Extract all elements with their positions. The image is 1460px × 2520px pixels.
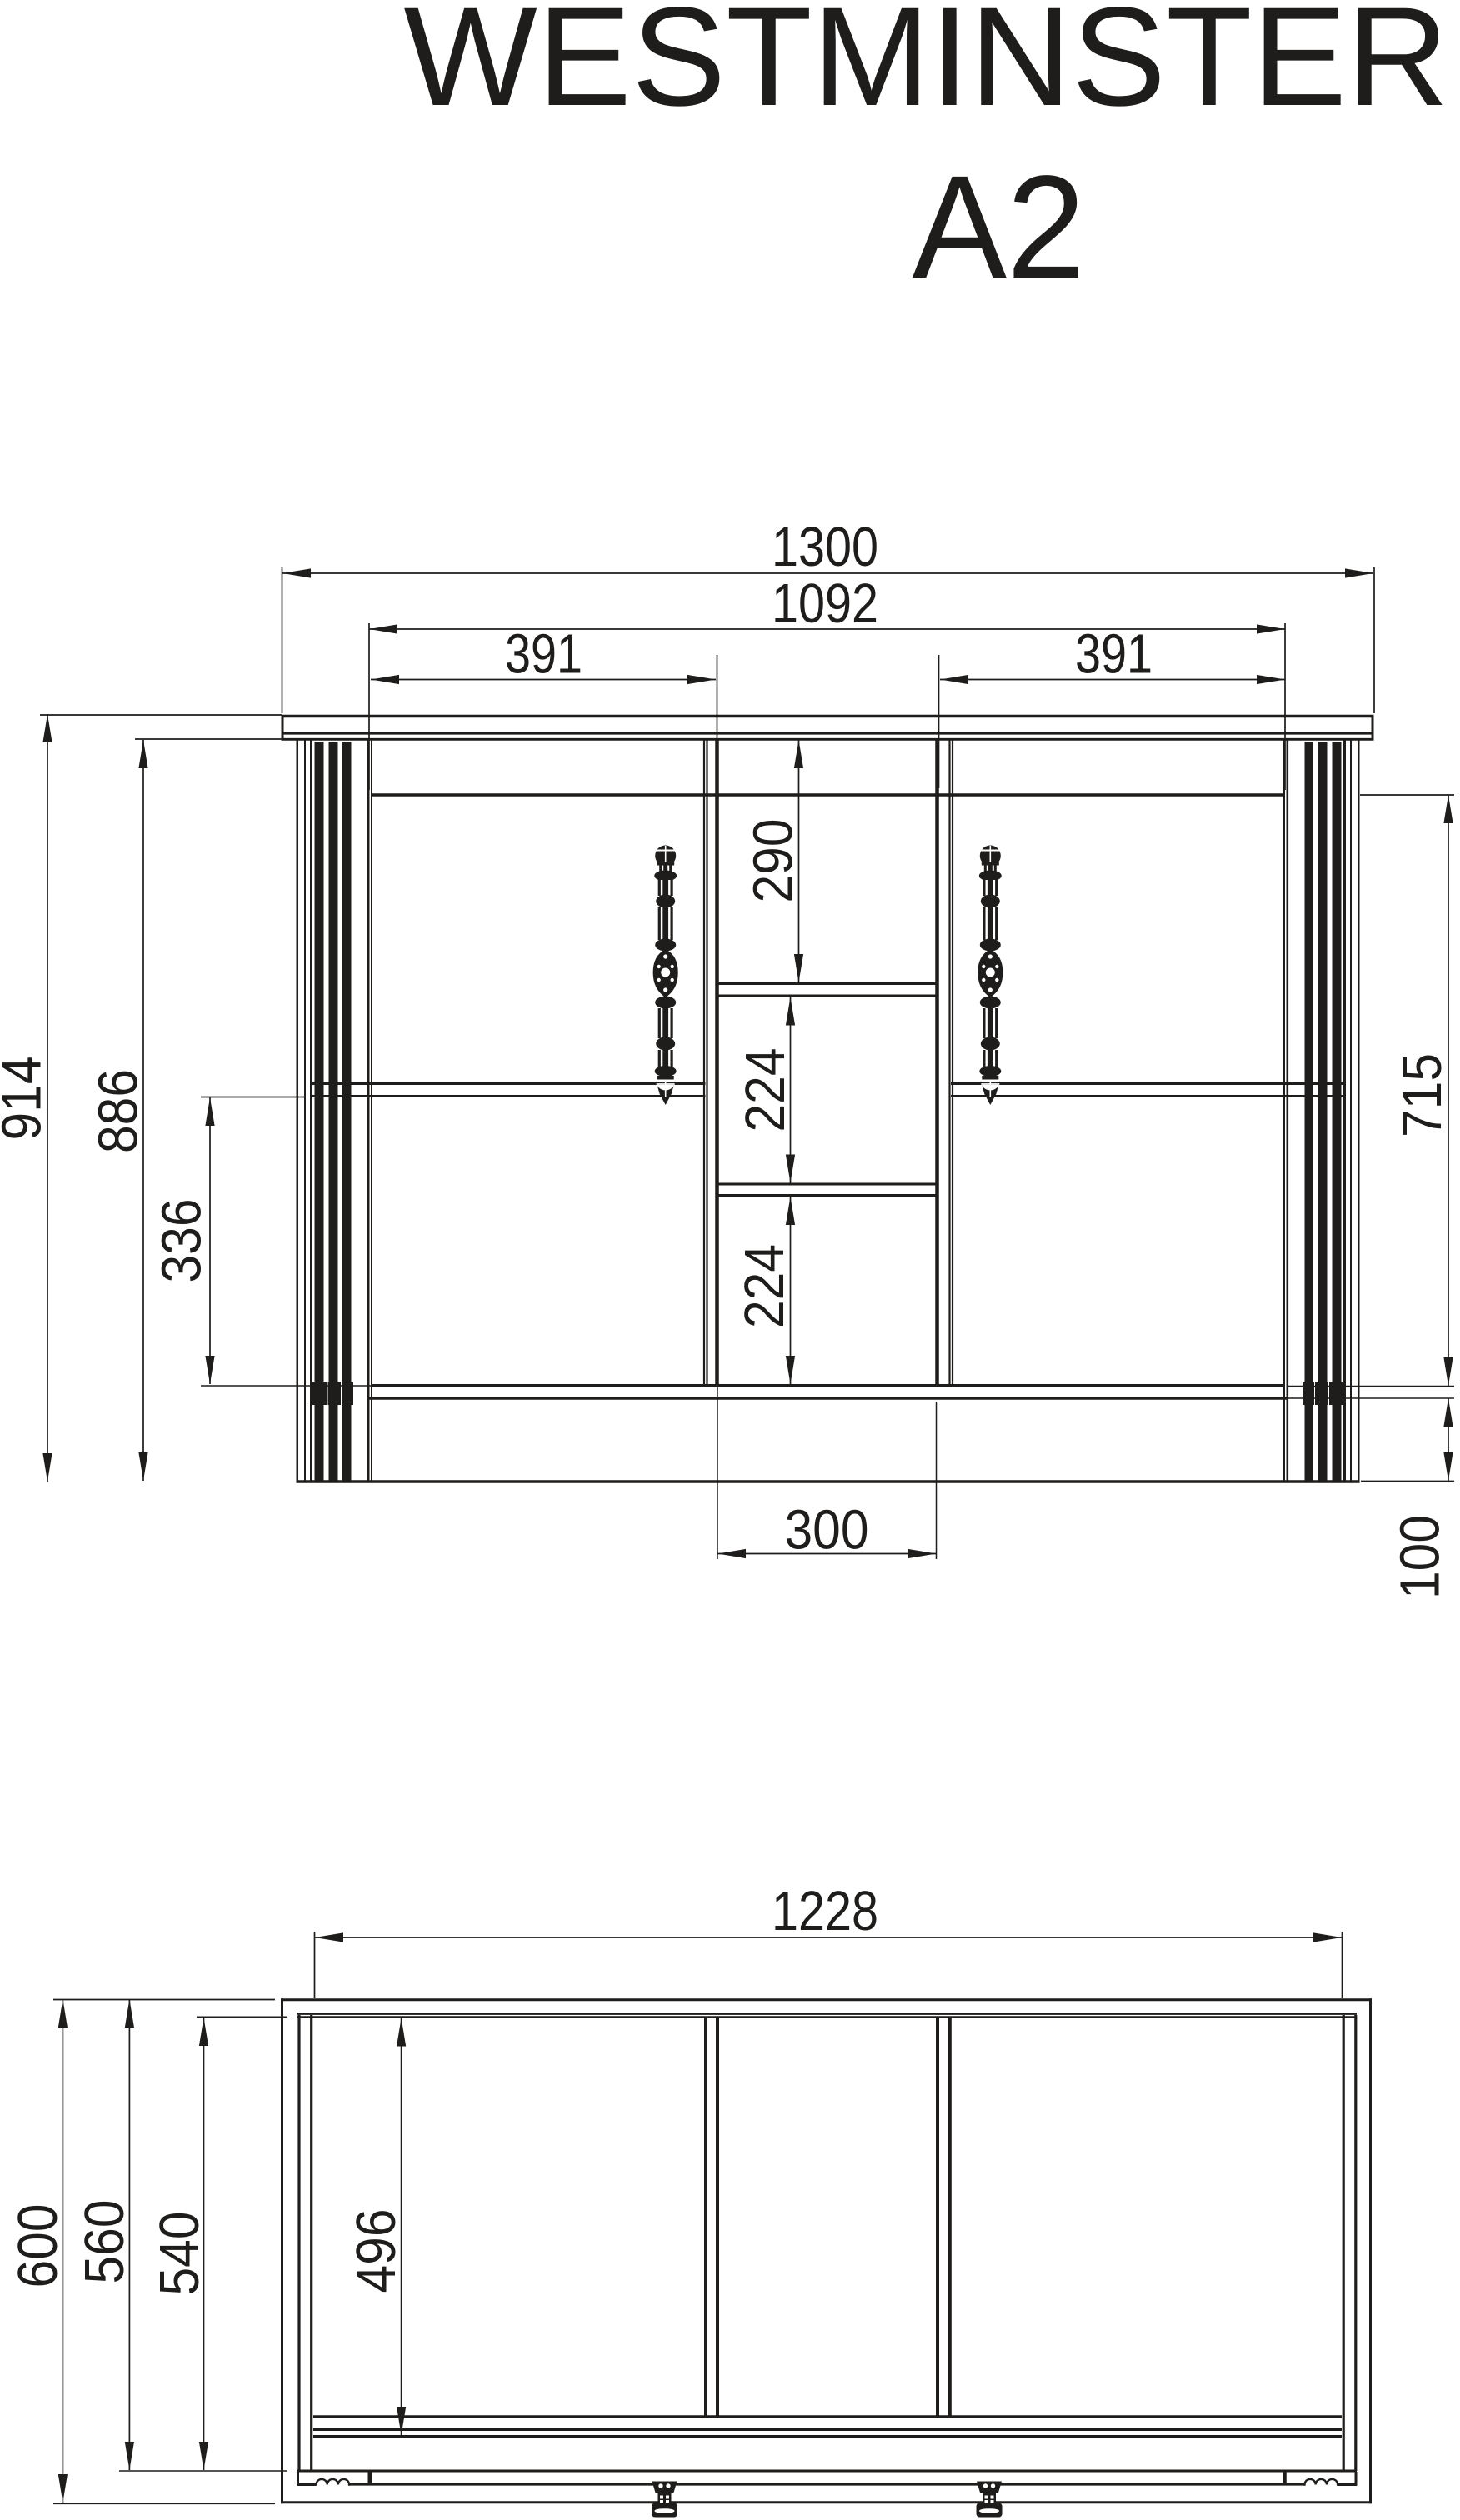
svg-text:496: 496 bbox=[345, 2209, 407, 2293]
svg-text:1228: 1228 bbox=[772, 1880, 878, 1942]
svg-text:A2: A2 bbox=[912, 146, 1086, 309]
svg-text:540: 540 bbox=[148, 2212, 211, 2296]
svg-text:391: 391 bbox=[505, 623, 582, 686]
svg-text:886: 886 bbox=[87, 1069, 150, 1153]
svg-text:300: 300 bbox=[785, 1499, 869, 1562]
svg-text:914: 914 bbox=[0, 1057, 53, 1141]
svg-text:600: 600 bbox=[7, 2204, 69, 2288]
svg-text:100: 100 bbox=[1389, 1515, 1452, 1599]
svg-text:290: 290 bbox=[742, 819, 805, 903]
svg-text:1300: 1300 bbox=[772, 516, 878, 578]
svg-text:715: 715 bbox=[1391, 1053, 1453, 1137]
svg-text:336: 336 bbox=[151, 1199, 213, 1283]
svg-text:224: 224 bbox=[734, 1048, 797, 1132]
svg-text:WESTMINSTER: WESTMINSTER bbox=[404, 0, 1449, 135]
svg-text:224: 224 bbox=[733, 1244, 796, 1328]
svg-text:391: 391 bbox=[1075, 623, 1152, 686]
svg-text:560: 560 bbox=[73, 2200, 136, 2284]
svg-text:1092: 1092 bbox=[772, 572, 878, 635]
